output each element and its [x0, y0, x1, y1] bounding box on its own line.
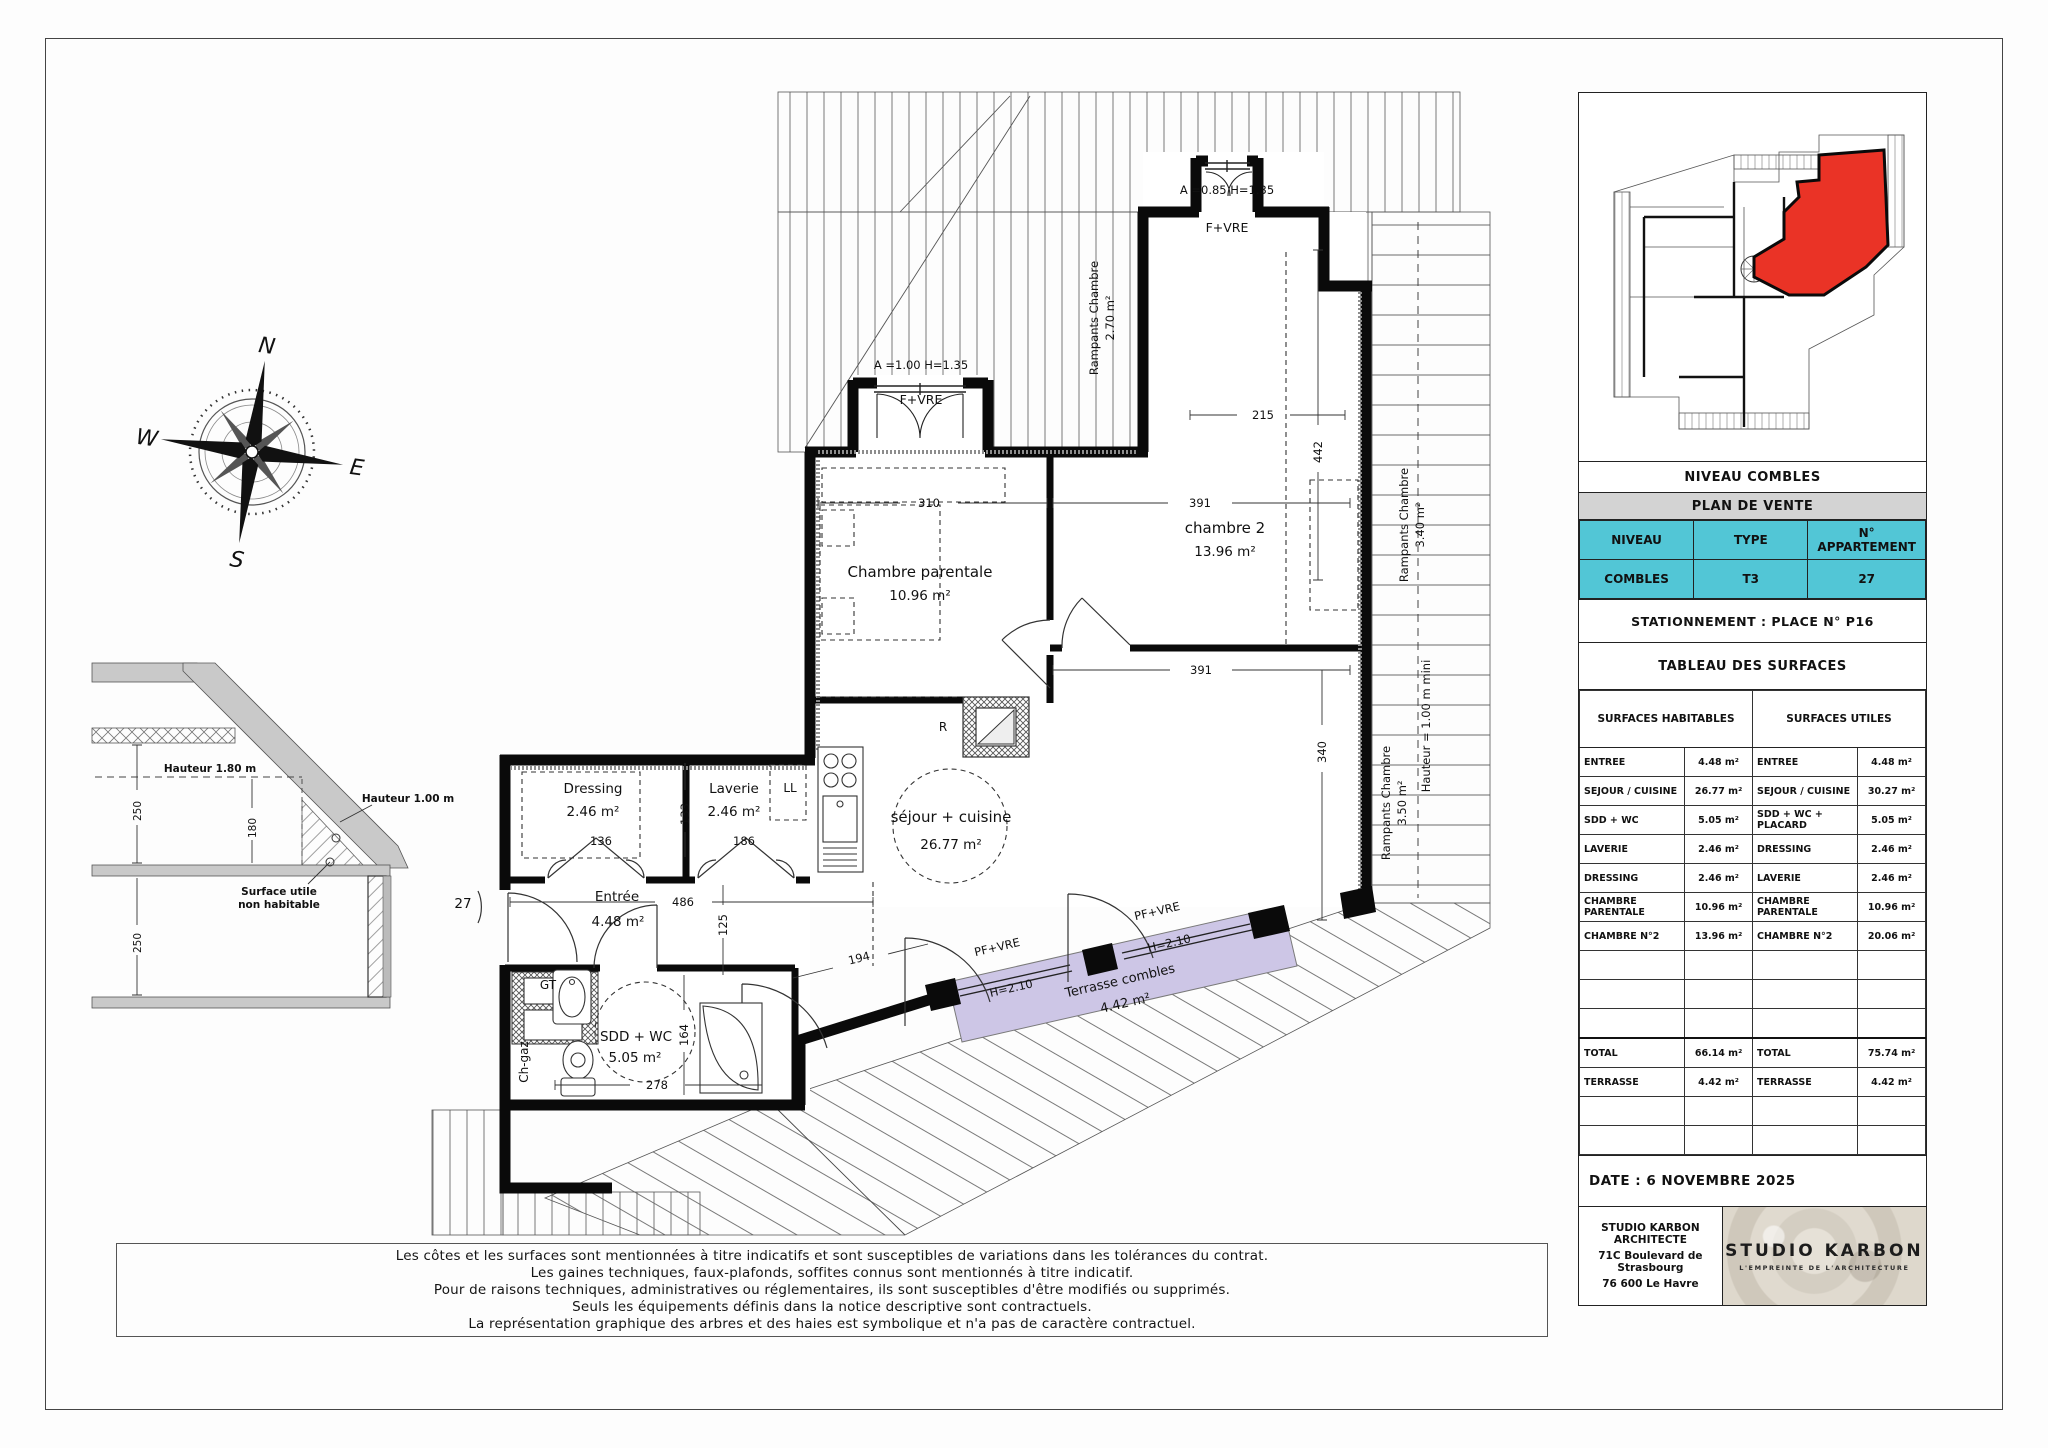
table-row-empty — [1580, 980, 1926, 1009]
svg-text:133: 133 — [678, 803, 692, 825]
svg-text:13.96 m²: 13.96 m² — [1194, 544, 1256, 560]
table-row: CHAMBRE N°213.96 m² CHAMBRE N°220.06 m² — [1580, 922, 1926, 951]
header-type: TYPE — [1694, 521, 1808, 560]
svg-text:278: 278 — [646, 1078, 668, 1092]
label-chgaz: Ch-gaz — [517, 1041, 531, 1083]
table-row: CHAMBRE PARENTALE10.96 m² CHAMBRE PARENT… — [1580, 893, 1926, 922]
svg-text:5.05 m²: 5.05 m² — [609, 1050, 662, 1066]
svg-text:non habitable: non habitable — [238, 899, 320, 911]
disclaimer-box: Les côtes et les surfaces sont mentionné… — [116, 1243, 1548, 1337]
studio-karbon-logo: STUDIO KARBON L'EMPREINTE DE L'ARCHITECT… — [1722, 1207, 1926, 1305]
svg-text:Rampants Chambre: Rampants Chambre — [1379, 746, 1393, 860]
table-row-empty — [1580, 1126, 1926, 1155]
disclaimer-line: Les côtes et les surfaces sont mentionné… — [396, 1248, 1269, 1264]
svg-text:A =0.85 H=1.35: A =0.85 H=1.35 — [1180, 183, 1274, 197]
svg-text:PF+VRE: PF+VRE — [973, 935, 1021, 959]
svg-text:10.96 m²: 10.96 m² — [889, 588, 951, 604]
label-ll: LL — [783, 781, 797, 795]
location-miniplan — [1579, 93, 1926, 461]
svg-text:Surface utile: Surface utile — [241, 886, 317, 898]
title-block: NIVEAU COMBLES PLAN DE VENTE NIVEAU TYPE… — [1578, 92, 1927, 1306]
header-apartment: N° APPARTEMENT — [1808, 521, 1926, 560]
svg-text:3.40 m²: 3.40 m² — [1413, 502, 1427, 547]
value-niveau: COMBLES — [1580, 560, 1694, 599]
svg-text:391: 391 — [1189, 496, 1211, 510]
svg-text:Rampants Chambre: Rampants Chambre — [1087, 261, 1101, 375]
svg-text:310: 310 — [918, 496, 940, 510]
label-r: R — [939, 720, 947, 734]
svg-text:442: 442 — [1311, 441, 1325, 463]
svg-text:250: 250 — [132, 801, 144, 821]
svg-text:136: 136 — [590, 834, 612, 848]
table-row-empty — [1580, 1009, 1926, 1039]
value-type: T3 — [1694, 560, 1808, 599]
room-chambre2-name: chambre 2 — [1185, 519, 1265, 537]
date-row: DATE : 6 NOVEMBRE 2025 — [1579, 1155, 1926, 1206]
table-row-terrasse: TERRASSE4.42 m² TERRASSE4.42 m² — [1580, 1068, 1926, 1097]
svg-text:2.46 m²: 2.46 m² — [567, 804, 620, 820]
room-sejour-name: séjour + cuisine — [891, 808, 1012, 826]
svg-text:215: 215 — [1252, 408, 1274, 422]
svg-text:164: 164 — [677, 1024, 691, 1046]
svg-text:S: S — [228, 547, 245, 574]
svg-text:Hauteur 1.00 m: Hauteur 1.00 m — [362, 793, 454, 805]
svg-text:A =1.00 H=1.35: A =1.00 H=1.35 — [874, 358, 968, 372]
disclaimer-line: Les gaines techniques, faux-plafonds, so… — [531, 1265, 1134, 1281]
disclaimer-line: Seuls les équipements définis dans la no… — [572, 1299, 1092, 1315]
svg-text:125: 125 — [716, 914, 730, 936]
value-apartment: 27 — [1808, 560, 1926, 599]
floor-plan-sheet: 310 391 391 215 442 340 486 125 133 136 … — [0, 0, 2048, 1448]
room-laverie-name: Laverie — [709, 781, 759, 797]
architect-block: STUDIO KARBON ARCHITECTE 71C Boulevard d… — [1579, 1206, 1926, 1305]
table-row: SDD + WC5.05 m² SDD + WC + PLACARD5.05 m… — [1580, 806, 1926, 835]
table-row: DRESSING2.46 m² LAVERIE2.46 m² — [1580, 864, 1926, 893]
apartment-table: NIVEAU TYPE N° APPARTEMENT COMBLES T3 27 — [1579, 519, 1926, 599]
miniplan-caption: NIVEAU COMBLES — [1579, 461, 1926, 492]
plan-de-vente-title: PLAN DE VENTE — [1579, 492, 1926, 519]
table-row-empty — [1580, 951, 1926, 980]
architect-info: STUDIO KARBON ARCHITECTE 71C Boulevard d… — [1579, 1207, 1722, 1305]
table-row: SEJOUR / CUISINE26.77 m² SEJOUR / CUISIN… — [1580, 777, 1926, 806]
col-habitables: SURFACES HABITABLES — [1580, 691, 1753, 748]
compass-rose: N E S W — [119, 318, 380, 589]
room-dressing-name: Dressing — [564, 781, 623, 797]
svg-text:4.48 m²: 4.48 m² — [592, 914, 645, 930]
table-row: LAVERIE2.46 m² DRESSING2.46 m² — [1580, 835, 1926, 864]
label-gt: GT — [540, 978, 557, 992]
svg-text:E: E — [348, 455, 365, 482]
svg-text:F+VRE: F+VRE — [1206, 220, 1249, 235]
svg-text:194: 194 — [847, 949, 872, 968]
svg-text:2.70 m²: 2.70 m² — [1103, 295, 1117, 340]
svg-text:Rampants Chambre: Rampants Chambre — [1397, 468, 1411, 582]
svg-text:391: 391 — [1190, 663, 1212, 677]
room-parentale-name: Chambre parentale — [848, 563, 993, 581]
surface-table-title: TABLEAU DES SURFACES — [1579, 642, 1926, 689]
parking-info: STATIONNEMENT : PLACE N° P16 — [1579, 599, 1926, 642]
label-door-number: 27 — [454, 896, 471, 912]
svg-text:F+VRE: F+VRE — [900, 392, 943, 407]
svg-text:Hauteur = 1.00 m mini: Hauteur = 1.00 m mini — [1419, 660, 1433, 793]
svg-text:N: N — [257, 333, 277, 360]
room-entree-name: Entrée — [595, 889, 639, 905]
svg-text:26.77 m²: 26.77 m² — [920, 837, 982, 853]
svg-text:250: 250 — [132, 933, 144, 953]
svg-text:340: 340 — [1315, 741, 1329, 763]
section-detail: 250 180 250 Hauteur 1.80 m Hauteur 1.00 … — [92, 663, 454, 1008]
disclaimer-line: Pour de raisons techniques, administrati… — [434, 1282, 1230, 1298]
svg-text:186: 186 — [733, 834, 755, 848]
svg-text:180: 180 — [247, 818, 259, 838]
table-row: ENTREE4.48 m² ENTREE4.48 m² — [1580, 748, 1926, 777]
disclaimer-line: La représentation graphique des arbres e… — [468, 1316, 1195, 1332]
svg-text:3.50 m²: 3.50 m² — [1395, 780, 1409, 825]
room-sdd-name: SDD + WC — [600, 1029, 672, 1045]
col-utiles: SURFACES UTILES — [1752, 691, 1925, 748]
svg-text:W: W — [134, 425, 160, 453]
svg-text:486: 486 — [672, 895, 694, 909]
svg-text:2.46 m²: 2.46 m² — [708, 804, 761, 820]
svg-text:Hauteur 1.80 m: Hauteur 1.80 m — [164, 763, 256, 775]
table-row-total: TOTAL66.14 m² TOTAL75.74 m² — [1580, 1038, 1926, 1068]
table-row-empty — [1580, 1097, 1926, 1126]
surfaces-table: SURFACES HABITABLES SURFACES UTILES ENTR… — [1579, 689, 1926, 1155]
header-niveau: NIVEAU — [1580, 521, 1694, 560]
